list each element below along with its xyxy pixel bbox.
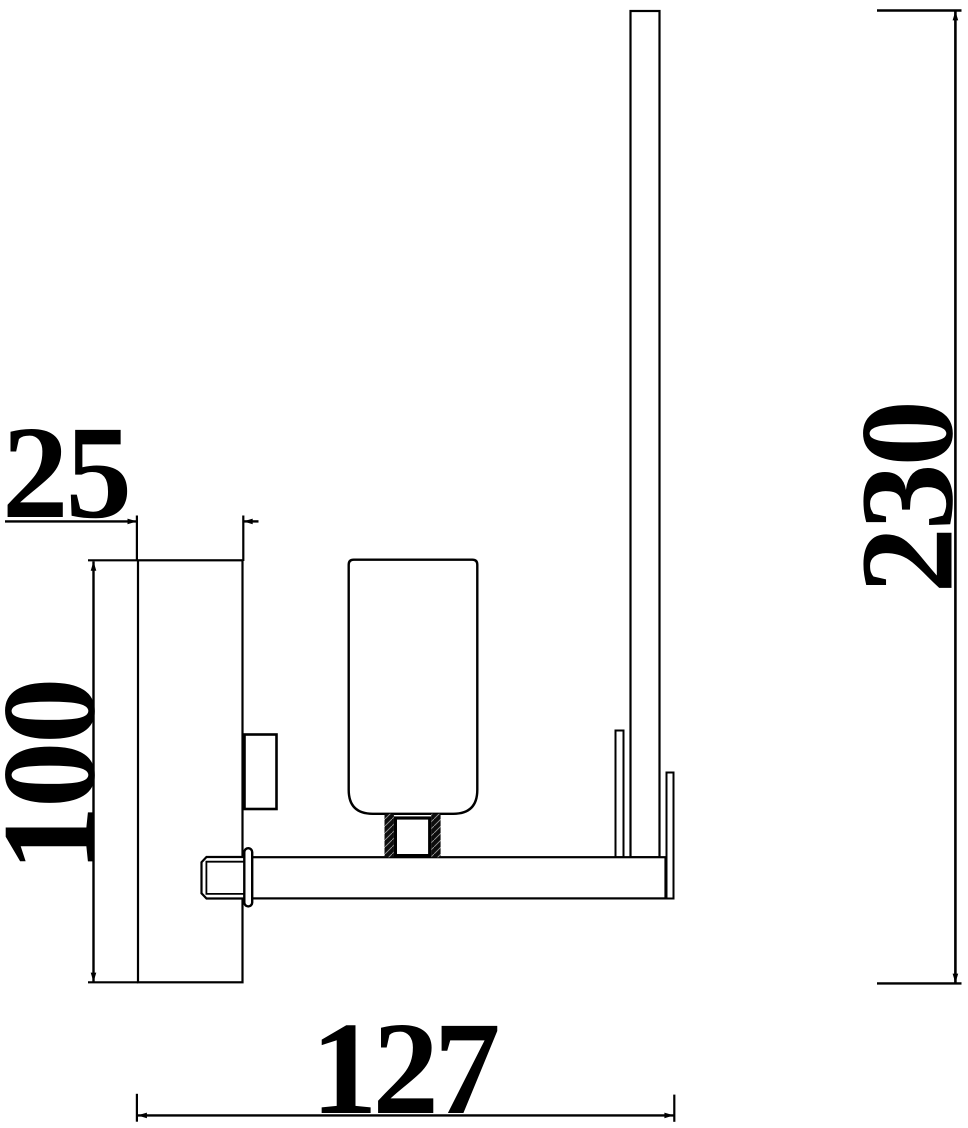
- svg-text:127: 127: [311, 994, 498, 1128]
- svg-text:230: 230: [833, 403, 968, 594]
- svg-text:100: 100: [0, 680, 123, 872]
- svg-text:25: 25: [2, 398, 129, 546]
